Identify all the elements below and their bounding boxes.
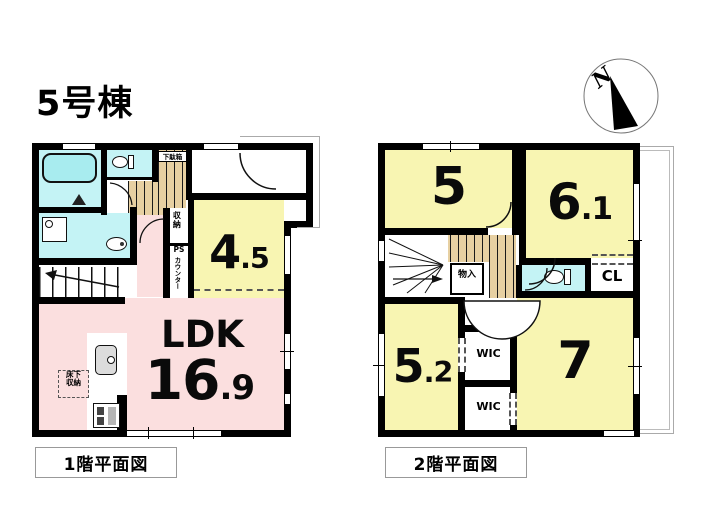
wall	[32, 258, 137, 265]
wall	[39, 207, 107, 213]
wall	[107, 177, 158, 180]
window-tick	[450, 141, 451, 152]
kitchen-faucet-icon	[107, 356, 115, 364]
room-4-5-num: 4	[209, 225, 240, 279]
ldk-frac: .9	[219, 368, 254, 408]
room7-door-arc	[462, 299, 542, 343]
floor2-caption: 2階平面図	[385, 447, 527, 478]
ldk-label: LDK	[150, 319, 255, 350]
grill-icon	[108, 407, 116, 425]
window-tick	[193, 427, 194, 439]
washing-machine-icon	[42, 217, 67, 242]
north-compass-icon: N	[583, 56, 661, 136]
stove-icon	[93, 403, 120, 428]
window	[284, 393, 291, 405]
room-4-5-frac: .5	[240, 242, 269, 275]
window	[603, 430, 635, 437]
porch-eave-line	[240, 136, 320, 137]
sink-icon	[106, 237, 127, 251]
counter-label: カウンター	[173, 257, 180, 290]
ldk-size: 16.9	[132, 357, 267, 404]
window	[633, 183, 640, 241]
compass-needle	[610, 76, 638, 130]
wall	[519, 150, 526, 265]
wall	[385, 228, 488, 235]
window	[378, 240, 385, 262]
faucet-icon	[120, 242, 124, 246]
wall	[516, 291, 591, 298]
window	[126, 430, 222, 437]
getabako-label: 下駄箱	[158, 151, 187, 162]
burner-icon	[97, 407, 104, 415]
balcony-outline-inner	[640, 150, 670, 430]
stairs-2f-treads	[385, 235, 448, 297]
page-title: 5号棟	[36, 86, 133, 123]
window-tick	[373, 365, 385, 366]
monoire-label: 物入	[450, 271, 484, 280]
toilet-door-arc	[523, 266, 549, 292]
closet-dashed-line	[592, 263, 633, 265]
window	[284, 235, 291, 275]
room-5-2-frac: .2	[424, 356, 453, 389]
porch-eave-line	[319, 136, 320, 228]
wic-upper-label: WIC	[467, 348, 510, 360]
room-5-2-num: 5	[393, 339, 424, 393]
room-6-1-num: 6	[547, 173, 581, 231]
wic-lower-opening	[509, 393, 517, 425]
yukashita-label-2: 収納	[59, 379, 88, 387]
kitchen-sink-icon	[95, 345, 117, 375]
outer-wall-top	[378, 143, 640, 150]
shunou-label: 収納	[172, 211, 180, 229]
window	[422, 143, 480, 150]
open-boundary-dashed	[194, 289, 284, 291]
outer-wall-left	[32, 143, 39, 437]
room-5-size: 5	[385, 165, 512, 209]
floor1-plan: 下駄箱 収納 PS カウンター 床下 収納 4.5 LDK 16.9	[32, 143, 314, 437]
window-tick	[280, 351, 294, 352]
corridor-door-arc	[138, 217, 166, 245]
wall	[130, 207, 137, 265]
room-4-5-size: 4.5	[194, 233, 284, 272]
room-6-1-frac: .1	[581, 191, 612, 227]
washer-drum-icon	[45, 220, 53, 228]
window	[203, 143, 239, 150]
wall	[188, 193, 313, 200]
toilet-bowl-icon	[112, 156, 128, 168]
window-tick	[148, 427, 149, 439]
stairs-2f	[385, 235, 448, 297]
wall	[32, 297, 125, 304]
outer-wall-right-upper	[306, 143, 313, 228]
toilet-tank-icon	[128, 155, 134, 169]
wall	[591, 291, 633, 298]
hall-flooring-vert	[489, 235, 516, 301]
cl-label: CL	[591, 269, 633, 285]
ps-label: PS	[170, 246, 188, 254]
underfloor-storage-box: 床下 収納	[58, 370, 89, 398]
porch-eave-line	[297, 227, 320, 228]
floorplan-canvas: 5号棟 N	[0, 0, 705, 525]
window	[62, 143, 96, 150]
bathtub-icon	[42, 153, 97, 183]
toilet-tank-icon	[564, 269, 571, 285]
outer-wall-bottom	[378, 430, 640, 437]
stairs-1f	[39, 267, 125, 297]
room-7-size: 7	[517, 339, 633, 383]
ldk-num: 16	[145, 348, 220, 412]
floor1-caption: 1階平面図	[35, 447, 177, 478]
floor2-plan: 物入 CL WIC WIC 5 6.1 5.2 7	[378, 143, 640, 437]
bath-door-icon	[72, 194, 86, 205]
washroom-door-arc	[108, 181, 134, 207]
room-7-num: 7	[557, 331, 592, 391]
closet-dashed-line	[592, 254, 633, 256]
burner-icon	[97, 417, 104, 425]
wall	[512, 150, 519, 235]
wall	[101, 150, 107, 215]
room-5-2-size: 5.2	[385, 347, 460, 386]
wall	[378, 297, 465, 304]
stairs-1f-arrow	[39, 267, 125, 297]
wic-lower-label: WIC	[467, 401, 510, 413]
entrance-door-arc	[238, 151, 278, 191]
room-5-num: 5	[431, 157, 466, 217]
room-6-1-size: 6.1	[526, 181, 633, 224]
